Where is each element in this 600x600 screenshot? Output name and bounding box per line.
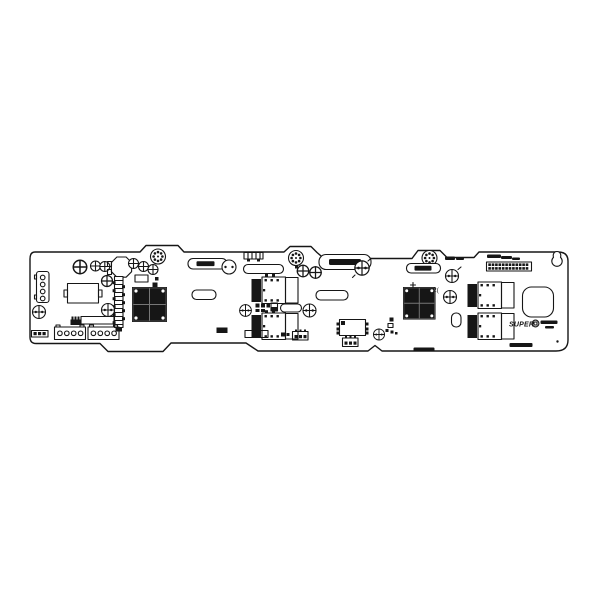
screw-hole: [303, 304, 316, 317]
test-point-dot: [556, 340, 558, 342]
silkscreen-label-pill-1: [188, 259, 227, 270]
bottom-text-blob: [414, 348, 435, 352]
supermicro-logo-text: SUPER: [509, 322, 534, 329]
keyhole-mount: [552, 252, 562, 267]
smd-part: [265, 310, 268, 313]
capacitor: [310, 267, 322, 279]
smd-part: [287, 333, 290, 336]
smd-part: [272, 274, 275, 277]
mounting-hole: [222, 260, 236, 274]
jumper-comb: [71, 317, 82, 326]
ref-marking: 2(: [433, 287, 440, 294]
part-number-blob: [510, 343, 533, 347]
smd-part: [281, 333, 285, 337]
smd-part: [153, 283, 158, 288]
screw-hole: [33, 306, 46, 319]
ic-chip-left: [132, 287, 167, 322]
capacitor: [297, 265, 309, 277]
pcb-backplane-drawing: 2( SUPER: [0, 0, 600, 600]
screw-hole: [240, 305, 252, 317]
smd-part: [265, 274, 268, 277]
smd-part: [155, 277, 159, 281]
ic-chip-right: [403, 287, 436, 320]
wan-label-pill: [407, 264, 441, 274]
jumper-block: [217, 328, 228, 334]
tooling-hole-middle: [289, 251, 304, 266]
screw-hole: [102, 304, 115, 317]
drawing-canvas: 2( SUPER: [0, 0, 600, 600]
screw-hole: [444, 291, 457, 304]
tooling-hole-left: [151, 249, 166, 264]
